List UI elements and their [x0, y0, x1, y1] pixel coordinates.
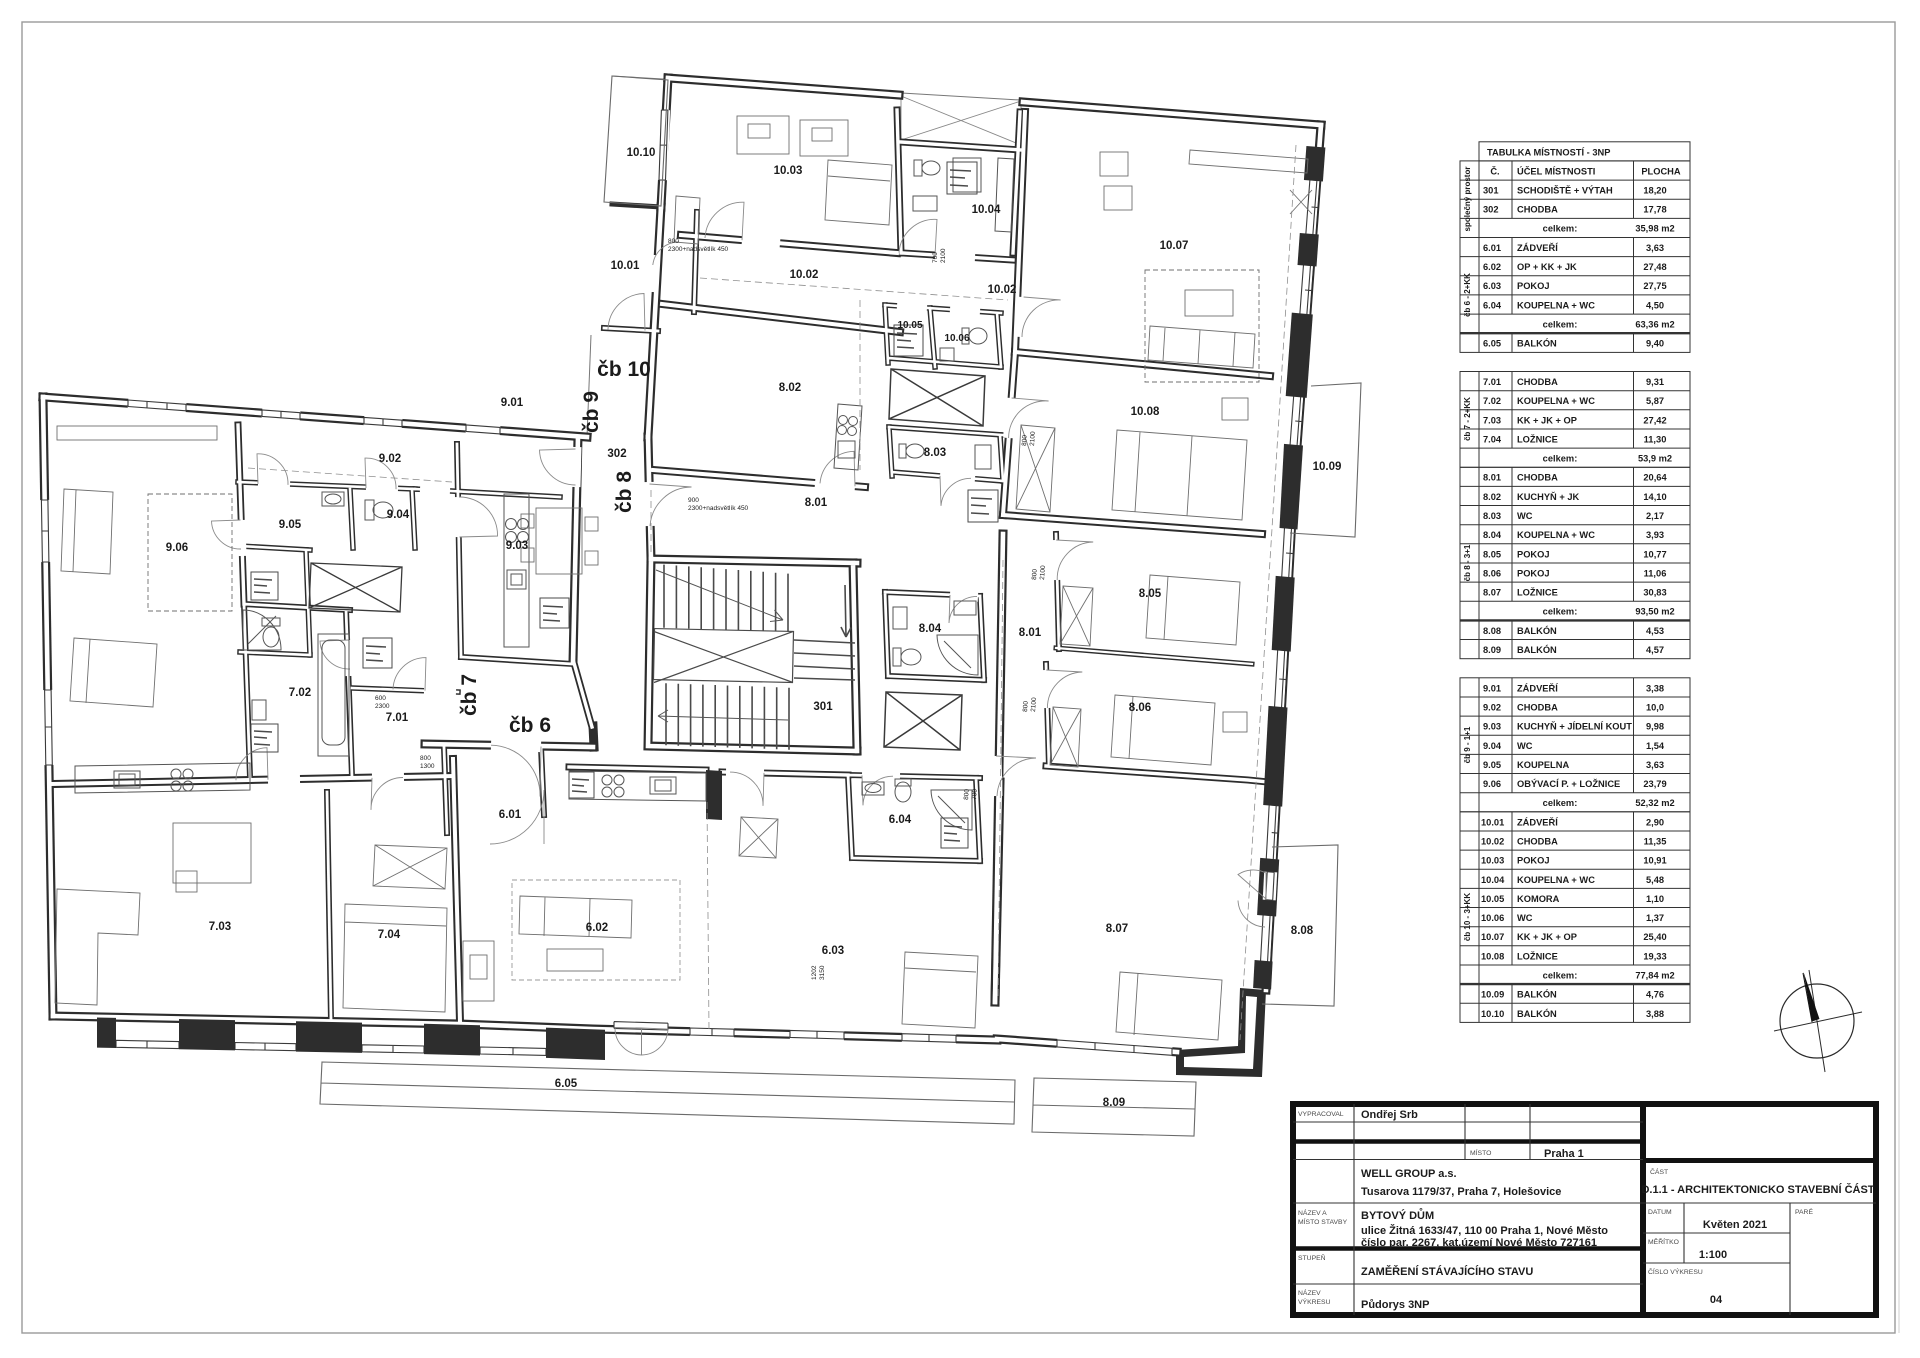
- svg-text:1300: 1300: [420, 763, 435, 770]
- svg-text:ČÍSLO VÝKRESU: ČÍSLO VÝKRESU: [1648, 1267, 1703, 1276]
- svg-text:20,64: 20,64: [1643, 473, 1667, 483]
- svg-text:7.01: 7.01: [1483, 377, 1501, 387]
- svg-text:BALKÓN: BALKÓN: [1517, 338, 1557, 349]
- svg-text:BALKÓN: BALKÓN: [1517, 1008, 1557, 1019]
- svg-text:čb 7: čb 7: [458, 674, 481, 716]
- svg-text:8.01: 8.01: [1019, 627, 1042, 639]
- svg-text:celkem:: celkem:: [1543, 454, 1578, 464]
- svg-text:čb 7 - 2+KK: čb 7 - 2+KK: [1463, 397, 1472, 441]
- svg-text:8.04: 8.04: [919, 623, 942, 635]
- svg-text:10.01: 10.01: [611, 260, 640, 272]
- svg-text:BALKÓN: BALKÓN: [1517, 625, 1557, 636]
- svg-text:600: 600: [375, 695, 386, 702]
- svg-text:8.02: 8.02: [779, 382, 801, 394]
- svg-text:10.07: 10.07: [1160, 240, 1189, 252]
- svg-text:6.03: 6.03: [1483, 281, 1501, 291]
- svg-text:8.07: 8.07: [1483, 588, 1501, 598]
- svg-text:7.02: 7.02: [289, 687, 311, 699]
- svg-text:9.03: 9.03: [1483, 722, 1501, 732]
- svg-text:6.02: 6.02: [1483, 262, 1501, 272]
- svg-text:9.02: 9.02: [1483, 703, 1501, 713]
- svg-text:1,37: 1,37: [1646, 913, 1664, 923]
- svg-text:8.07: 8.07: [1106, 923, 1128, 935]
- svg-text:1:100: 1:100: [1699, 1249, 1727, 1261]
- svg-text:63,36 m2: 63,36 m2: [1635, 319, 1674, 329]
- svg-text:10.08: 10.08: [1131, 406, 1160, 418]
- svg-text:23,79: 23,79: [1643, 779, 1666, 789]
- svg-text:8.01: 8.01: [805, 497, 828, 509]
- svg-text:27,75: 27,75: [1643, 281, 1666, 291]
- svg-text:9.06: 9.06: [166, 542, 188, 554]
- svg-text:10.08: 10.08: [1481, 951, 1504, 961]
- svg-text:302: 302: [1483, 205, 1499, 215]
- svg-text:10.09: 10.09: [1313, 461, 1342, 473]
- svg-text:9.05: 9.05: [279, 519, 302, 531]
- svg-text:35,98 m2: 35,98 m2: [1635, 224, 1674, 234]
- svg-text:čb 10 - 3+KK: čb 10 - 3+KK: [1463, 893, 1472, 941]
- svg-text:celkem:: celkem:: [1543, 607, 1578, 617]
- svg-text:WC: WC: [1517, 741, 1533, 751]
- svg-text:KK + JK + OP: KK + JK + OP: [1517, 932, 1577, 942]
- svg-text:6.01: 6.01: [499, 809, 522, 821]
- svg-text:77,84 m2: 77,84 m2: [1635, 971, 1674, 981]
- svg-text:VYPRACOVAL: VYPRACOVAL: [1298, 1111, 1344, 1118]
- svg-text:ZAMĚŘENÍ STÁVAJÍCÍHO STAVU: ZAMĚŘENÍ STÁVAJÍCÍHO STAVU: [1361, 1265, 1533, 1278]
- svg-text:8.06: 8.06: [1129, 702, 1151, 714]
- svg-text:POKOJ: POKOJ: [1517, 568, 1550, 578]
- svg-text:800: 800: [1022, 700, 1030, 712]
- svg-text:8.03: 8.03: [1483, 511, 1501, 521]
- svg-text:číslo par. 2267, kat.území Nov: číslo par. 2267, kat.území Nové Město 72…: [1361, 1237, 1597, 1249]
- svg-text:25,40: 25,40: [1643, 932, 1666, 942]
- svg-text:LOŽNICE: LOŽNICE: [1517, 587, 1558, 598]
- svg-text:ZÁDVEŘÍ: ZÁDVEŘÍ: [1517, 682, 1558, 693]
- svg-text:10.05: 10.05: [897, 320, 922, 331]
- svg-text:BYTOVÝ DŮM: BYTOVÝ DŮM: [1361, 1208, 1434, 1222]
- svg-text:27,42: 27,42: [1643, 415, 1666, 425]
- svg-text:SCHODIŠTĚ + VÝTAH: SCHODIŠTĚ + VÝTAH: [1517, 184, 1613, 195]
- svg-text:10.07: 10.07: [1481, 932, 1504, 942]
- svg-text:3150: 3150: [819, 965, 826, 980]
- svg-text:KUCHYŇ + JK: KUCHYŇ + JK: [1517, 491, 1580, 502]
- svg-text:D.1.1 - ARCHITEKTONICKO STAVEB: D.1.1 - ARCHITEKTONICKO STAVEBNÍ ČÁST: [1641, 1183, 1874, 1196]
- svg-text:8.08: 8.08: [1291, 925, 1314, 937]
- svg-text:9.06: 9.06: [1483, 779, 1501, 789]
- svg-text:KOUPELNA: KOUPELNA: [1517, 760, 1569, 770]
- svg-text:2,90: 2,90: [1646, 817, 1664, 827]
- svg-text:celkem:: celkem:: [1543, 971, 1578, 981]
- svg-text:2300: 2300: [375, 703, 390, 710]
- svg-text:MĚŘÍTKO: MĚŘÍTKO: [1648, 1237, 1679, 1246]
- svg-text:9.04: 9.04: [1483, 741, 1502, 751]
- svg-text:KK + JK + OP: KK + JK + OP: [1517, 415, 1577, 425]
- svg-text:čb 6 - 2+KK: čb 6 - 2+KK: [1463, 273, 1472, 317]
- svg-text:27,48: 27,48: [1643, 262, 1666, 272]
- svg-text:5,48: 5,48: [1646, 875, 1664, 885]
- svg-text:9,98: 9,98: [1646, 722, 1664, 732]
- svg-text:Tusarova 1179/37, Praha 7, Hol: Tusarova 1179/37, Praha 7, Holešovice: [1361, 1186, 1561, 1198]
- svg-text:KOUPELNA + WC: KOUPELNA + WC: [1517, 300, 1595, 310]
- svg-text:čb 9: čb 9: [580, 391, 603, 433]
- svg-text:10.02: 10.02: [790, 269, 819, 281]
- svg-text:10,91: 10,91: [1643, 856, 1666, 866]
- svg-text:10.10: 10.10: [627, 147, 656, 159]
- svg-text:1202: 1202: [811, 965, 818, 980]
- svg-text:4,76: 4,76: [1646, 990, 1664, 1000]
- svg-text:900: 900: [688, 497, 699, 504]
- svg-text:9,31: 9,31: [1646, 377, 1664, 387]
- svg-text:KUCHYŇ + JÍDELNÍ KOUT: KUCHYŇ + JÍDELNÍ KOUT: [1517, 721, 1632, 732]
- svg-text:čb 10: čb 10: [597, 358, 651, 381]
- svg-text:Ondřej Srb: Ondřej Srb: [1361, 1109, 1418, 1121]
- svg-text:301: 301: [1483, 185, 1499, 195]
- svg-text:10.02: 10.02: [1481, 837, 1504, 847]
- svg-text:800: 800: [1031, 568, 1039, 580]
- svg-text:52,32 m2: 52,32 m2: [1635, 798, 1674, 808]
- svg-text:5,87: 5,87: [1646, 396, 1664, 406]
- svg-text:Květen 2021: Květen 2021: [1703, 1219, 1767, 1231]
- svg-text:10.02: 10.02: [988, 284, 1017, 296]
- svg-text:8.01: 8.01: [1483, 473, 1501, 483]
- svg-text:93,50 m2: 93,50 m2: [1635, 607, 1674, 617]
- svg-text:WC: WC: [1517, 511, 1533, 521]
- svg-text:10.03: 10.03: [1481, 856, 1504, 866]
- svg-text:OP + KK + JK: OP + KK + JK: [1517, 262, 1577, 272]
- svg-text:6.02: 6.02: [586, 922, 608, 934]
- svg-text:10,0: 10,0: [1646, 703, 1664, 713]
- svg-text:11,06: 11,06: [1644, 568, 1667, 578]
- svg-text:800: 800: [420, 755, 431, 762]
- svg-text:800: 800: [963, 788, 971, 800]
- svg-text:POKOJ: POKOJ: [1517, 856, 1550, 866]
- svg-text:8.09: 8.09: [1103, 1097, 1125, 1109]
- svg-text:6.04: 6.04: [1483, 300, 1502, 310]
- svg-text:700: 700: [971, 788, 979, 800]
- svg-text:8.05: 8.05: [1139, 588, 1162, 600]
- svg-text:NÁZEV: NÁZEV: [1298, 1288, 1321, 1297]
- svg-text:MÍSTO: MÍSTO: [1470, 1148, 1491, 1157]
- svg-text:301: 301: [813, 701, 833, 713]
- svg-text:POKOJ: POKOJ: [1517, 549, 1550, 559]
- svg-text:společný prostor: společný prostor: [1463, 167, 1472, 232]
- svg-text:ZÁDVEŘÍ: ZÁDVEŘÍ: [1517, 816, 1558, 827]
- svg-text:8.05: 8.05: [1483, 549, 1501, 559]
- svg-text:2300+nadsvětlík 450: 2300+nadsvětlík 450: [688, 505, 749, 512]
- svg-text:9.04: 9.04: [387, 509, 410, 521]
- svg-text:9.01: 9.01: [501, 397, 524, 409]
- svg-text:8.02: 8.02: [1483, 492, 1501, 502]
- svg-text:3,93: 3,93: [1646, 530, 1664, 540]
- svg-text:10.04: 10.04: [1481, 875, 1505, 885]
- svg-text:4,50: 4,50: [1646, 300, 1664, 310]
- svg-text:čb 8 - 3+1: čb 8 - 3+1: [1463, 544, 1472, 581]
- svg-text:Půdorys 3NP: Půdorys 3NP: [1361, 1299, 1429, 1311]
- svg-text:11,30: 11,30: [1644, 434, 1667, 444]
- svg-text:302: 302: [607, 448, 626, 460]
- svg-text:6.03: 6.03: [822, 945, 844, 957]
- svg-text:2300+nadsvětlík 450: 2300+nadsvětlík 450: [668, 246, 729, 253]
- svg-text:10.06: 10.06: [1481, 913, 1504, 923]
- svg-text:VÝKRESU: VÝKRESU: [1298, 1297, 1331, 1306]
- svg-text:BALKÓN: BALKÓN: [1517, 989, 1557, 1000]
- svg-text:11,35: 11,35: [1644, 837, 1667, 847]
- svg-text:2,17: 2,17: [1646, 511, 1664, 521]
- svg-text:9.03: 9.03: [506, 540, 528, 552]
- svg-text:800: 800: [1021, 435, 1029, 447]
- svg-text:8.06: 8.06: [1483, 568, 1501, 578]
- svg-text:7.03: 7.03: [209, 921, 231, 933]
- svg-text:9.01: 9.01: [1483, 683, 1501, 693]
- svg-text:KOUPELNA + WC: KOUPELNA + WC: [1517, 530, 1595, 540]
- svg-text:1,10: 1,10: [1646, 894, 1664, 904]
- svg-text:LOŽNICE: LOŽNICE: [1517, 950, 1558, 961]
- svg-text:6.05: 6.05: [1483, 339, 1501, 349]
- svg-text:9,40: 9,40: [1646, 339, 1664, 349]
- svg-text:celkem:: celkem:: [1543, 319, 1578, 329]
- svg-text:čb 9 - 1+1: čb 9 - 1+1: [1463, 726, 1472, 763]
- svg-text:CHODBA: CHODBA: [1517, 473, 1558, 483]
- svg-text:ZÁDVEŘÍ: ZÁDVEŘÍ: [1517, 242, 1558, 253]
- svg-text:CHODBA: CHODBA: [1517, 377, 1558, 387]
- svg-text:WC: WC: [1517, 913, 1533, 923]
- svg-text:30,83: 30,83: [1643, 588, 1666, 598]
- svg-text:TABULKA MÍSTNOSTÍ - 3NP: TABULKA MÍSTNOSTÍ - 3NP: [1487, 148, 1610, 158]
- svg-text:700: 700: [932, 252, 939, 263]
- svg-text:PARÉ: PARÉ: [1795, 1207, 1813, 1216]
- svg-text:MÍSTO STAVBY: MÍSTO STAVBY: [1298, 1217, 1348, 1226]
- svg-text:Č.: Č.: [1490, 165, 1499, 176]
- svg-text:KOMORA: KOMORA: [1517, 894, 1560, 904]
- svg-text:10.06: 10.06: [944, 333, 969, 344]
- svg-text:10.01: 10.01: [1481, 817, 1504, 827]
- svg-text:7.02: 7.02: [1483, 396, 1501, 406]
- svg-text:14,10: 14,10: [1643, 492, 1666, 502]
- svg-text:6.01: 6.01: [1483, 243, 1501, 253]
- svg-text:2100: 2100: [940, 248, 947, 263]
- svg-text:10.10: 10.10: [1481, 1009, 1504, 1019]
- svg-text:1,54: 1,54: [1646, 741, 1665, 751]
- svg-text:celkem:: celkem:: [1543, 798, 1578, 808]
- svg-text:3,88: 3,88: [1646, 1009, 1664, 1019]
- svg-text:53,9 m2: 53,9 m2: [1638, 454, 1672, 464]
- svg-text:OBÝVACÍ P. + LOŽNICE: OBÝVACÍ P. + LOŽNICE: [1517, 778, 1620, 789]
- svg-text:BALKÓN: BALKÓN: [1517, 644, 1557, 655]
- svg-text:7.04: 7.04: [378, 929, 401, 941]
- svg-text:celkem:: celkem:: [1543, 224, 1578, 234]
- svg-text:10.09: 10.09: [1481, 990, 1504, 1000]
- svg-text:3,63: 3,63: [1646, 243, 1664, 253]
- svg-text:7.04: 7.04: [1483, 434, 1502, 444]
- svg-text:STUPEŇ: STUPEŇ: [1298, 1253, 1326, 1262]
- svg-text:Praha 1: Praha 1: [1544, 1148, 1584, 1160]
- svg-text:7.01: 7.01: [386, 712, 409, 724]
- svg-text:10.03: 10.03: [774, 165, 803, 177]
- svg-text:2100: 2100: [1030, 697, 1038, 712]
- svg-text:čb 6: čb 6: [509, 714, 551, 737]
- svg-text:8.03: 8.03: [924, 447, 946, 459]
- svg-text:9.05: 9.05: [1483, 760, 1501, 770]
- svg-text:3,63: 3,63: [1646, 760, 1664, 770]
- svg-text:2100: 2100: [1039, 565, 1047, 580]
- svg-text:2100: 2100: [1029, 431, 1037, 446]
- svg-text:8.08: 8.08: [1483, 626, 1501, 636]
- svg-text:DATUM: DATUM: [1648, 1209, 1672, 1216]
- svg-text:čb 8: čb 8: [613, 471, 636, 513]
- svg-text:10,77: 10,77: [1643, 549, 1666, 559]
- svg-text:4,53: 4,53: [1646, 626, 1664, 636]
- svg-text:WELL GROUP a.s.: WELL GROUP a.s.: [1361, 1168, 1457, 1180]
- svg-text:ČÁST: ČÁST: [1650, 1167, 1668, 1176]
- svg-text:8.04: 8.04: [1483, 530, 1502, 540]
- svg-text:17,78: 17,78: [1643, 205, 1666, 215]
- svg-text:04: 04: [1710, 1294, 1723, 1306]
- svg-text:CHODBA: CHODBA: [1517, 837, 1558, 847]
- svg-text:CHODBA: CHODBA: [1517, 703, 1558, 713]
- svg-text:9.02: 9.02: [379, 453, 401, 465]
- svg-text:ulice Žitná 1633/47, 110 00 P: ulice Žitná 1633/47, 110 00 Praha 1, Nov…: [1361, 1224, 1608, 1237]
- svg-text:KOUPELNA + WC: KOUPELNA + WC: [1517, 875, 1595, 885]
- svg-text:800: 800: [668, 238, 679, 245]
- svg-text:KOUPELNA + WC: KOUPELNA + WC: [1517, 396, 1595, 406]
- svg-text:7.03: 7.03: [1483, 415, 1501, 425]
- svg-text:6.04: 6.04: [889, 814, 912, 826]
- svg-text:10.05: 10.05: [1481, 894, 1504, 904]
- svg-text:3,38: 3,38: [1646, 683, 1664, 693]
- svg-text:CHODBA: CHODBA: [1517, 205, 1558, 215]
- svg-text:18,20: 18,20: [1643, 185, 1666, 195]
- svg-text:PLOCHA: PLOCHA: [1641, 166, 1681, 176]
- svg-text:LOŽNICE: LOŽNICE: [1517, 433, 1558, 444]
- svg-text:NÁZEV A: NÁZEV A: [1298, 1208, 1327, 1217]
- svg-text:10.04: 10.04: [972, 204, 1001, 216]
- svg-text:4,57: 4,57: [1646, 645, 1664, 655]
- svg-text:19,33: 19,33: [1643, 951, 1666, 961]
- svg-text:8.09: 8.09: [1483, 645, 1501, 655]
- svg-text:6.05: 6.05: [555, 1078, 578, 1090]
- svg-text:ÚČEL MÍSTNOSTI: ÚČEL MÍSTNOSTI: [1517, 165, 1595, 176]
- svg-text:POKOJ: POKOJ: [1517, 281, 1550, 291]
